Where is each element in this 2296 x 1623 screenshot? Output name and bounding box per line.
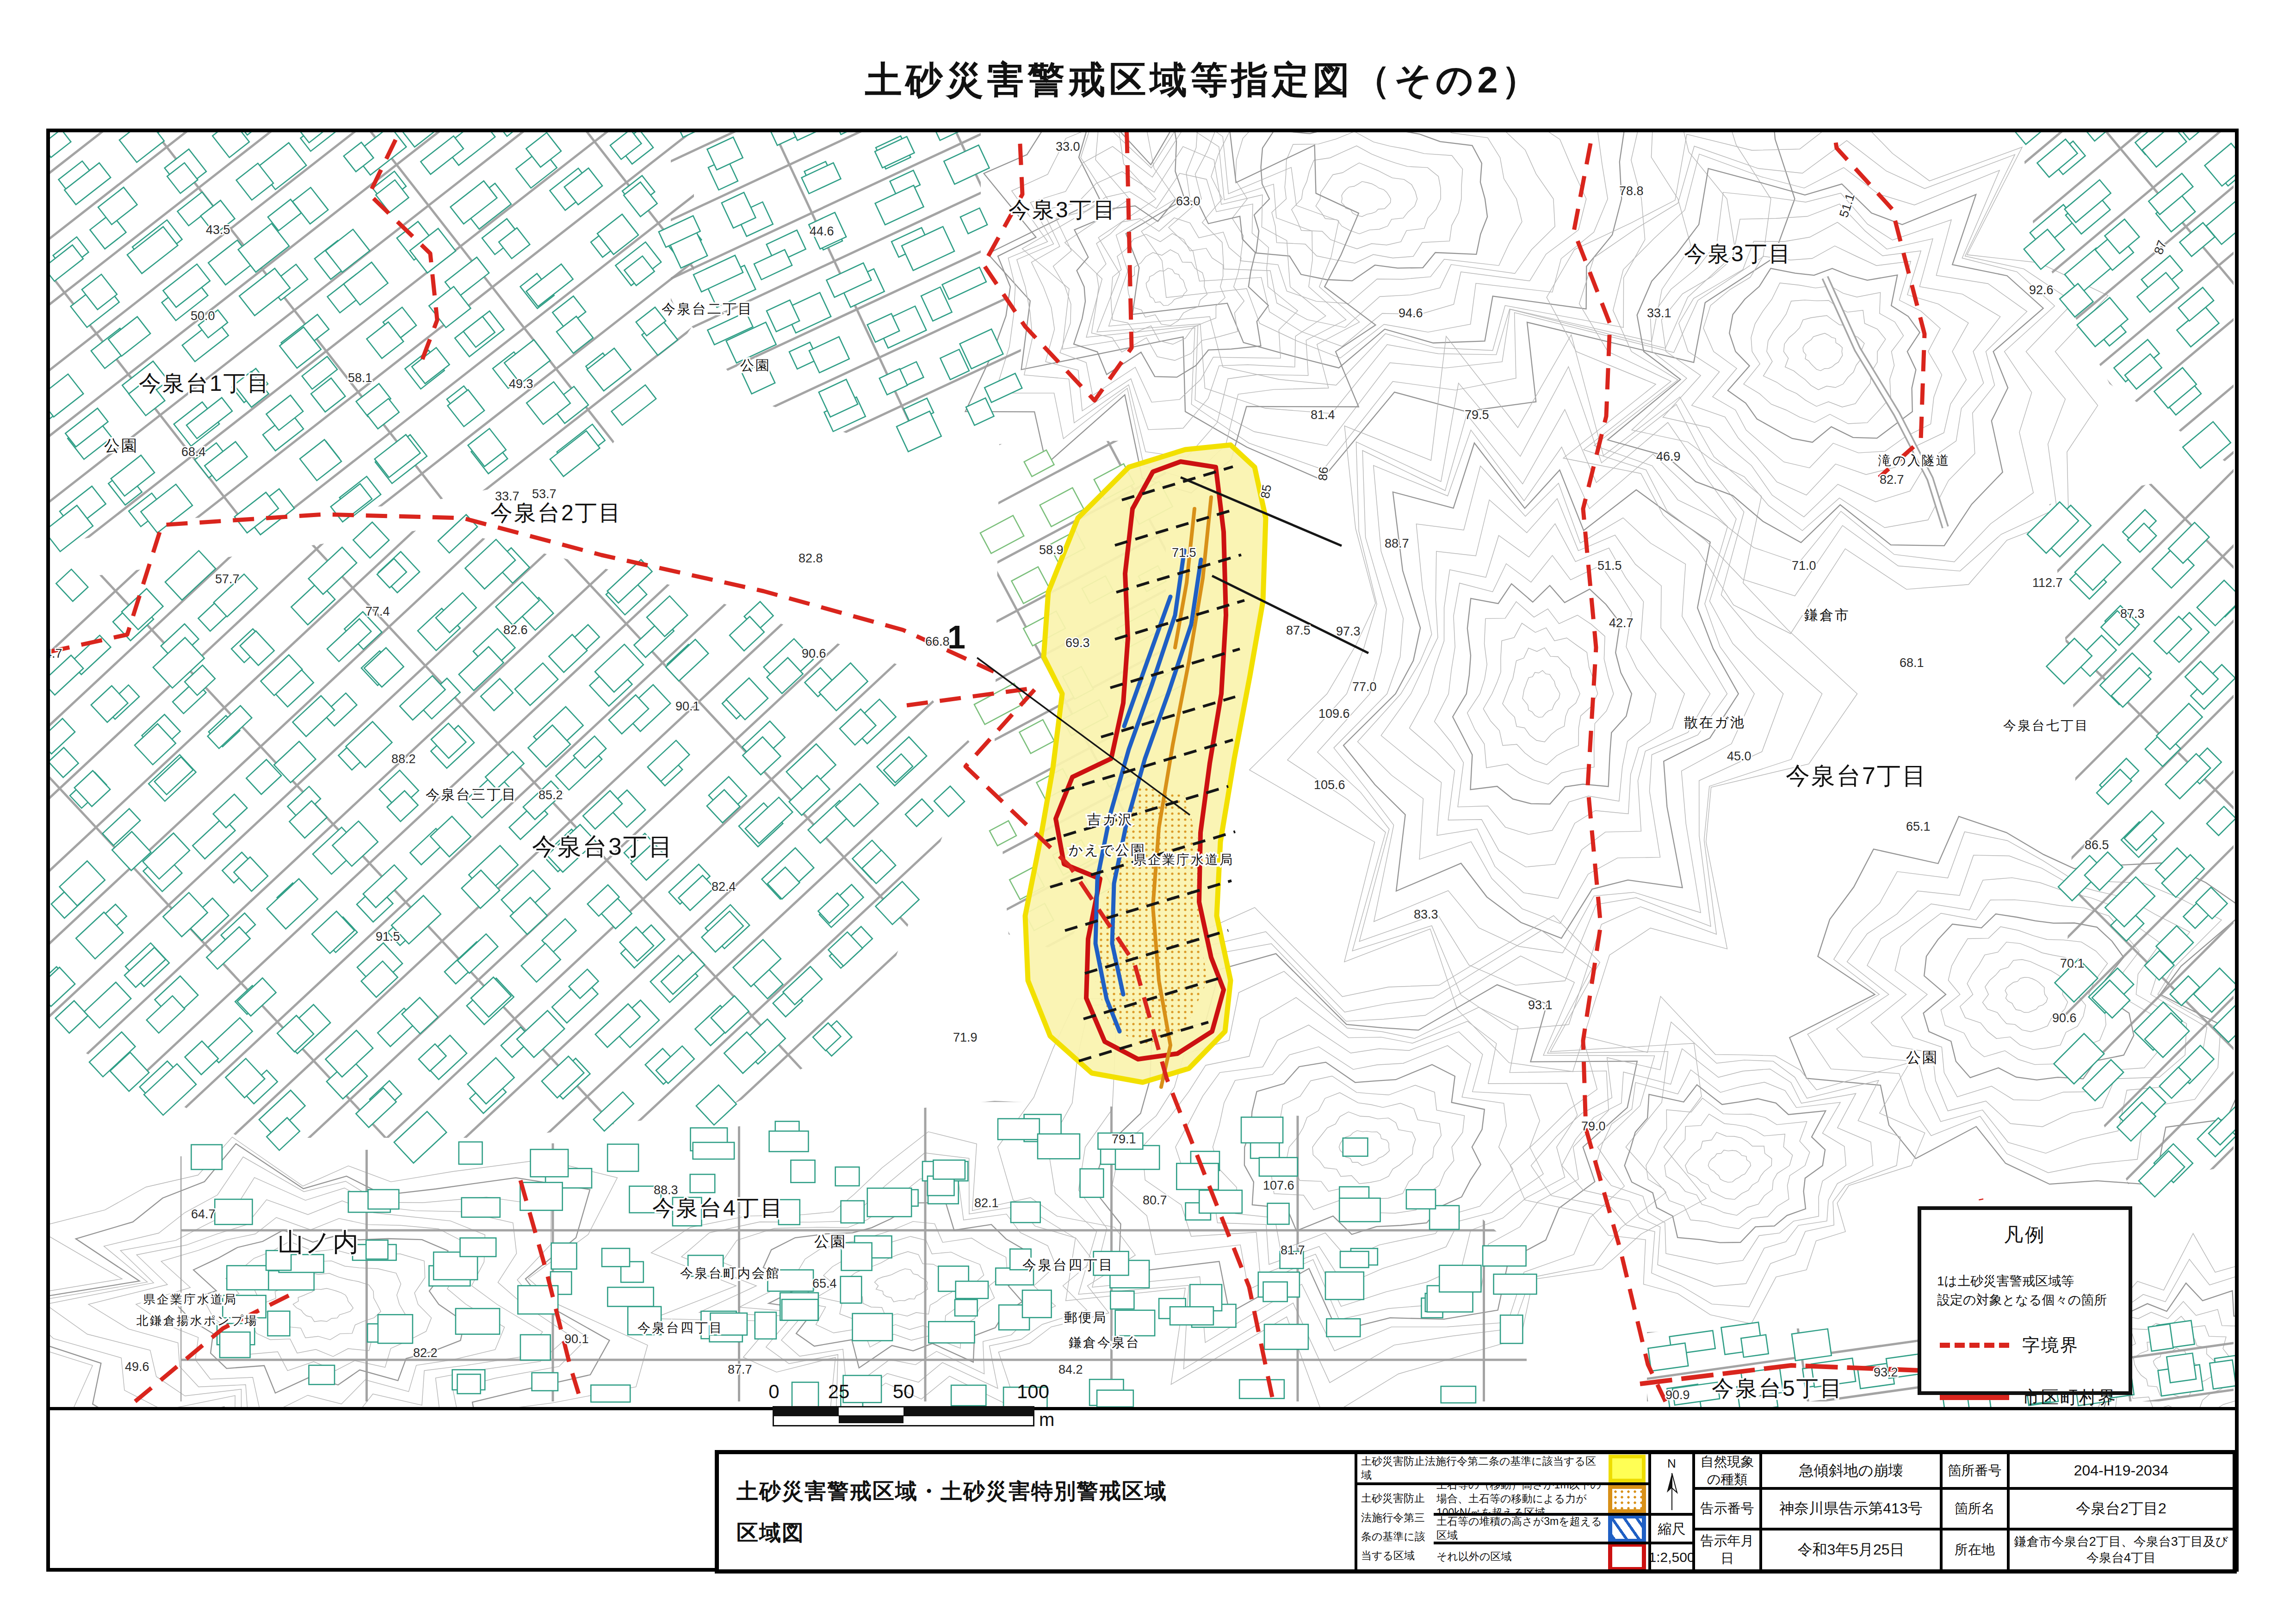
place-label: 鎌倉今泉台 — [1069, 1335, 1140, 1350]
place-label: 公園 — [814, 1233, 847, 1250]
spot-elevation: 71.5 — [1172, 546, 1196, 560]
spot-elevation: 82.8 — [798, 551, 823, 565]
map-sheet-title-line1: 土砂災害警戒区域・土砂災害特別警戒区域 — [736, 1470, 1167, 1512]
legend-note-line2: 設定の対象となる個々の箇所 — [1937, 1291, 2129, 1310]
place-label: 鎌倉市 — [1804, 607, 1850, 623]
place-label: 散在ガ池 — [1684, 715, 1745, 730]
notice-number-label-cell: 告示番号 — [1695, 1490, 1759, 1528]
place-label: 今泉台町内会館 — [680, 1266, 780, 1280]
map-frame: 159.445.233.063.071.278.978.843.544.650.… — [46, 129, 2239, 1572]
spot-elevation: 68.1 — [1900, 656, 1924, 670]
swatch-orange-cell — [1606, 1485, 1648, 1513]
scale-tick-25: 25 — [828, 1381, 850, 1403]
map-border-line — [50, 1407, 2235, 1410]
location-value-cell: 鎌倉市今泉台2丁目、今泉台3丁目及び今泉台4丁目 — [2010, 1530, 2233, 1569]
legend-note-line1: 1は土砂災害警戒区域等 — [1937, 1272, 2129, 1291]
spot-elevation: 68.4 — [181, 445, 206, 459]
place-label: 今泉台7丁目 — [1786, 762, 1928, 789]
hazard-map-page: { "title": "土砂災害警戒区域等指定図（その2）", "scale_b… — [0, 0, 2296, 1623]
scale-tick-50: 50 — [893, 1381, 915, 1403]
dashed-line-sample — [1940, 1343, 2009, 1348]
place-label: 今泉台四丁目 — [637, 1321, 724, 1335]
info-table: 土砂災害警戒区域・土砂災害特別警戒区域 区域図 土砂災害防止法施行令第二条の基準… — [715, 1450, 2237, 1574]
north-arrow-icon — [1664, 1471, 1680, 1511]
spot-elevation: 49.3 — [509, 377, 533, 391]
spot-elevation: 87.3 — [2120, 607, 2145, 621]
legend-note: 1は土砂災害警戒区域等 設定の対象となる個々の箇所 — [1937, 1272, 2129, 1309]
legend-dashed-label: 字境界 — [2022, 1333, 2079, 1357]
spot-elevation: 50.0 — [191, 309, 215, 323]
spot-elevation: 78.8 — [1619, 184, 1644, 198]
spot-elevation: 90.6 — [2052, 1011, 2077, 1025]
spot-elevation: 81.7 — [1281, 1243, 1305, 1257]
criteria-other-cell: それ以外の区域 — [1433, 1544, 1607, 1569]
place-label: 郵便局 — [1064, 1310, 1107, 1325]
spot-elevation: 109.6 — [1318, 707, 1350, 721]
spot-elevation: 88.2 — [391, 752, 416, 766]
spot-elevation: 57.7 — [215, 572, 240, 586]
place-label: 公園 — [740, 358, 771, 373]
site-marker-1: 1 — [947, 619, 965, 655]
spot-elevation: 49.6 — [125, 1360, 149, 1374]
place-label: 県企業庁水道局 — [143, 1292, 237, 1306]
deposit-zone-swatch — [1608, 1516, 1646, 1542]
spot-elevation: 46.9 — [1656, 450, 1681, 463]
phenomenon-label-cell: 自然現象の種類 — [1695, 1454, 1759, 1487]
page-title: 土砂災害警戒区域等指定図（その2） — [111, 56, 2296, 105]
legend-title: 凡例 — [1921, 1222, 2129, 1248]
scale-bar: 0 25 50 100 m — [763, 1381, 1087, 1441]
spot-elevation: 66.8 — [925, 635, 950, 648]
spot-elevation: 80.7 — [1143, 1193, 1167, 1207]
spot-elevation: 51.5 — [1597, 559, 1622, 573]
spot-elevation: 79.5 — [1465, 408, 1489, 422]
spot-elevation: 90.1 — [675, 699, 700, 713]
place-label: 今泉台四丁目 — [1022, 1257, 1114, 1272]
spot-elevation: 82.6 — [503, 623, 528, 637]
spot-elevation: 90.1 — [564, 1332, 589, 1346]
place-label: 今泉台1丁目 — [139, 371, 271, 395]
spot-elevation: 33.0 — [1056, 140, 1080, 154]
spot-elevation: 88.3 — [654, 1183, 678, 1197]
spot-elevation: 85 — [1258, 483, 1274, 500]
place-label: 公園 — [104, 437, 138, 454]
spot-elevation: 82.2 — [413, 1346, 438, 1360]
spot-elevation: 84.2 — [1058, 1363, 1083, 1376]
spot-elevation: 63.0 — [1176, 194, 1201, 208]
spot-elevation: 84.7 — [50, 647, 62, 660]
spot-elevation: 92.6 — [2029, 283, 2054, 297]
spot-elevation: 65.4 — [812, 1277, 837, 1290]
spot-elevation: 87.5 — [1286, 623, 1311, 637]
place-label: 吉ガ沢 — [1087, 812, 1133, 827]
spot-elevation: 97.3 — [1336, 624, 1361, 638]
spot-elevation: 93.2 — [1874, 1365, 1898, 1379]
place-label: 今泉3丁目 — [1009, 197, 1117, 222]
spot-elevation: 83.3 — [1414, 907, 1438, 921]
notice-number-value-cell: 神奈川県告示第413号 — [1762, 1490, 1940, 1528]
spot-elevation: 70.1 — [2060, 957, 2085, 970]
spot-elevation: 82.1 — [974, 1196, 999, 1210]
spot-elevation: 51.1 — [1837, 192, 1857, 219]
place-label: 今泉台3丁目 — [532, 833, 674, 860]
solid-line-sample — [1940, 1395, 2009, 1400]
phenomenon-value-cell: 急傾斜地の崩壊 — [1762, 1454, 1940, 1487]
place-label: 北鎌倉揚水ポンプ場 — [136, 1314, 258, 1327]
spot-elevation: 42.7 — [1609, 616, 1634, 630]
criteria-article2-cell: 土砂災害防止法施行令第二条の基準に該当する区域 — [1357, 1454, 1607, 1482]
spot-elevation: 65.1 — [1906, 820, 1931, 833]
spot-elevation: 90.6 — [802, 647, 826, 660]
legend-item-aza-boundary: 字境界 — [1940, 1333, 2129, 1357]
swatch-blue-cell — [1606, 1516, 1648, 1542]
criteria-article3-header-cell: 土砂災害防止法施行令第三条の基準に該当する区域 — [1357, 1485, 1434, 1569]
spot-elevation: 58.9 — [1039, 543, 1064, 557]
location-label-cell: 所在地 — [1943, 1530, 2007, 1569]
spot-elevation: 43.5 — [206, 223, 230, 237]
spot-elevation: 86 — [1316, 466, 1331, 481]
spot-elevation: 105.6 — [1314, 778, 1345, 792]
spot-elevation: 86.5 — [2085, 838, 2109, 852]
place-label: 県企業庁水道局 — [1133, 852, 1234, 867]
place-label: 公園 — [1906, 1049, 1938, 1066]
map-sheet-title-line2: 区域図 — [736, 1512, 1167, 1553]
warning-zone-swatch — [1609, 1455, 1646, 1482]
spot-elevation: 90.9 — [1665, 1388, 1690, 1402]
legend-solid-label: 市区町村界 — [2022, 1386, 2117, 1409]
spot-elevation: 88.7 — [1385, 537, 1409, 550]
spot-elevation: 77.0 — [1352, 680, 1377, 694]
spot-elevation: 44.6 — [810, 224, 834, 238]
scale-label-cell: 縮尺 — [1651, 1516, 1692, 1542]
special-zone-swatch — [1608, 1544, 1646, 1569]
criteria-movement-cell: 土石等の（移動）高さが1m以下の場合、土石等の移動による力が100kN/㎡を超え… — [1433, 1485, 1607, 1513]
spot-elevation: 94.6 — [1399, 306, 1423, 320]
spot-elevation: 79.1 — [1112, 1132, 1136, 1146]
spot-elevation: 81.4 — [1311, 408, 1335, 422]
spot-elevation: 87.7 — [728, 1363, 752, 1376]
movement-zone-swatch — [1608, 1485, 1646, 1513]
swatch-red-cell — [1606, 1544, 1648, 1569]
scale-value-cell: 1:2,500 — [1651, 1544, 1692, 1569]
spot-elevation: 71.9 — [953, 1031, 978, 1044]
place-label: 今泉台三丁目 — [426, 787, 517, 802]
scale-bar-rule — [773, 1406, 1034, 1426]
spot-elevation: 64.7 — [191, 1207, 216, 1221]
spot-elevation: 85.2 — [538, 788, 563, 802]
spot-elevation: 112.7 — [2032, 576, 2063, 590]
site-number-value-cell: 204-H19-2034 — [2010, 1454, 2233, 1487]
spot-elevation: 45.0 — [1727, 749, 1751, 763]
spot-elevation: 53.7 — [532, 487, 557, 501]
place-label: 今泉台2丁目 — [490, 500, 622, 525]
spot-elevation: 77.4 — [365, 605, 390, 618]
site-name-label-cell: 箇所名 — [1943, 1490, 2007, 1528]
scale-tick-100: 100 — [1017, 1381, 1049, 1403]
spot-elevation: 33.1 — [1647, 306, 1671, 320]
place-label: 今泉3丁目 — [1684, 241, 1792, 266]
topographic-map: 159.445.233.063.071.278.978.843.544.650.… — [50, 132, 2235, 1407]
criteria-deposit-cell: 土石等の堆積の高さが3mを超える区域 — [1433, 1516, 1607, 1542]
legend-item-municipal-boundary: 市区町村界 — [1940, 1386, 2129, 1409]
compass-cell: N — [1651, 1454, 1692, 1513]
place-label: 今泉台二丁目 — [662, 301, 753, 316]
notice-date-value-cell: 令和3年5月25日 — [1762, 1530, 1940, 1569]
spot-elevation: 91.5 — [376, 930, 400, 944]
place-label: 今泉台4丁目 — [652, 1196, 784, 1220]
scale-tick-0: 0 — [768, 1381, 779, 1403]
notice-date-label-cell: 告示年月日 — [1695, 1530, 1759, 1569]
legend-box: 凡例 1は土砂災害警戒区域等 設定の対象となる個々の箇所 字境界 市区町村界 — [1918, 1206, 2132, 1395]
spot-elevation: 93.1 — [1528, 998, 1553, 1012]
spot-elevation: 71.0 — [1792, 559, 1816, 573]
site-name-value-cell: 今泉台2丁目2 — [2010, 1490, 2233, 1528]
scale-unit: m — [1039, 1409, 1054, 1430]
compass-label: N — [1667, 1456, 1676, 1472]
spot-elevation: 82.4 — [712, 880, 736, 894]
place-label: 滝の入隧道 — [1878, 453, 1950, 468]
swatch-yellow-cell — [1606, 1454, 1648, 1482]
place-label: 今泉台七丁目 — [2003, 718, 2089, 733]
spot-elevation: 69.3 — [1065, 636, 1090, 650]
spot-elevation: 79.0 — [1581, 1119, 1606, 1133]
place-label: 今泉台5丁目 — [1712, 1376, 1844, 1401]
spot-elevation: 107.6 — [1263, 1179, 1294, 1192]
site-number-label-cell: 箇所番号 — [1943, 1454, 2007, 1487]
place-label: 山ノ内 — [278, 1228, 360, 1257]
map-sheet-title-cell: 土砂災害警戒区域・土砂災害特別警戒区域 区域図 — [719, 1454, 1355, 1569]
spot-elevation: 82.7 — [1880, 473, 1904, 487]
spot-elevation: 58.1 — [348, 371, 372, 385]
